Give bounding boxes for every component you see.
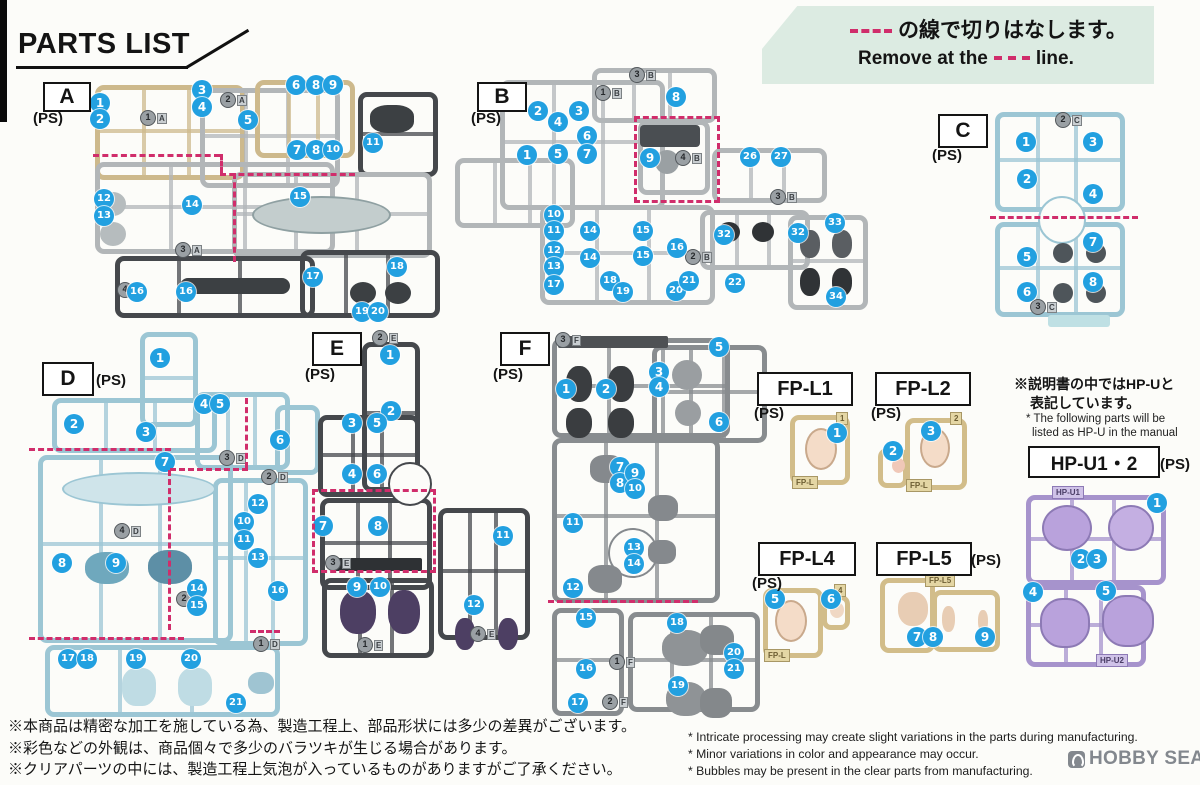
part-callout-E-12: 12 (464, 595, 484, 615)
part-callout-A-7: 7 (287, 140, 307, 160)
part-callout-F-2: 2 (596, 379, 616, 399)
runner-tag: 3A (175, 242, 202, 258)
runner-tag-letter: D (131, 526, 141, 537)
runner-tag-number: 1 (609, 654, 625, 670)
part-callout-F-1: 1 (556, 379, 576, 399)
cut-line (29, 637, 184, 640)
sprue-bar (1000, 158, 1120, 162)
runner-tag-letter: B (702, 252, 712, 263)
runner-tag-letter: D (270, 639, 280, 650)
cut-line (250, 630, 280, 633)
runner-chip: FP-L (906, 479, 932, 492)
part-callout-F-11: 11 (563, 513, 583, 533)
runner-label-box-B: B (477, 82, 527, 112)
part-callout-A-14: 14 (182, 195, 202, 215)
cut-line (220, 154, 223, 173)
runner-tag-number: 1 (357, 637, 373, 653)
runner-ps-label-D: (PS) (96, 372, 126, 389)
runner-tag: 1E (357, 637, 383, 653)
runner-tag-letter: A (157, 113, 167, 124)
part-callout-D-19: 19 (126, 649, 146, 669)
runner-tag-letter: A (237, 95, 247, 106)
part-callout-B-14: 14 (580, 248, 600, 268)
part-blob (752, 222, 774, 242)
part-blob (648, 495, 678, 521)
runner-tag-number: 3 (1030, 299, 1046, 315)
sprue-bar (104, 403, 108, 448)
runner-tag-letter: B (646, 70, 656, 81)
runner-tag-letter: F (619, 697, 628, 708)
cut-line (220, 173, 355, 176)
cut-line (245, 398, 248, 468)
part-callout-B-1: 1 (517, 145, 537, 165)
runner-tag: 2A (220, 92, 247, 108)
runner-tag: 2D (261, 469, 288, 485)
runner-tag: 1B (595, 85, 622, 101)
part-callout-C-3: 3 (1083, 132, 1103, 152)
runner-label-box-FP-L2: FP-L2 (875, 372, 971, 406)
part-callout-F-12: 12 (563, 578, 583, 598)
part-callout-F-19: 19 (668, 676, 688, 696)
runner-tag-number: 3 (629, 67, 645, 83)
part-callout-D-13: 13 (248, 548, 268, 568)
footer-jp-line2: ※彩色などの外観は、商品個々で多少のバラツキが生じる場合があります。 (8, 738, 636, 760)
part-callout-D-11: 11 (234, 530, 254, 550)
part-callout-E-9: 9 (347, 577, 367, 597)
part-callout-B-11: 11 (544, 221, 564, 241)
part-callout-HP-U-4: 4 (1023, 582, 1043, 602)
sprue-bar (528, 163, 532, 223)
sprue-bar (43, 542, 228, 546)
part-callout-B-13: 13 (544, 257, 564, 277)
hp-note-en-line1: * The following parts will be (1026, 413, 1165, 425)
part-blob (178, 668, 212, 706)
runner-tag: 1F (609, 654, 635, 670)
part-blob (180, 278, 290, 294)
part-callout-E-3: 3 (342, 413, 362, 433)
runner-tag-number: 3 (770, 189, 786, 205)
runner-tag: 2E (372, 330, 398, 346)
hp-note-jp-line2: 表記しています。 (1030, 393, 1140, 413)
runner-label-box-F: F (500, 332, 550, 366)
runner-tag-letter: F (626, 657, 635, 668)
part-blob (675, 400, 701, 426)
part-blob (1053, 243, 1073, 263)
runner-ps-label-FP-L2: (PS) (871, 405, 901, 422)
part-callout-E-5: 5 (367, 413, 387, 433)
cut-note-jp-text: の線で切りはなします。 (898, 19, 1127, 42)
runner-tag-number: 2 (372, 330, 388, 346)
part-callout-D-2: 2 (64, 414, 84, 434)
part-callout-F-21: 21 (724, 659, 744, 679)
runner-tag: 2B (685, 249, 712, 265)
sprue-bar (253, 397, 257, 465)
sprue-bar (657, 390, 762, 394)
part-callout-B-32: 32 (714, 225, 734, 245)
runner-ps-label-B: (PS) (471, 110, 501, 127)
part-callout-E-1: 1 (380, 345, 400, 365)
sprue-frame (652, 345, 767, 443)
part-callout-B-8: 8 (666, 87, 686, 107)
runner-label-box-FP-L4: FP-L4 (758, 542, 856, 576)
part-blob (566, 408, 592, 438)
part-callout-C-1: 1 (1016, 132, 1036, 152)
cut-line (168, 470, 171, 630)
part-blob (832, 230, 852, 258)
sprue-bar (443, 569, 525, 573)
runner-tag-letter: F (572, 335, 581, 346)
cut-line-box (634, 116, 720, 203)
runner-tag-number: 2 (685, 249, 701, 265)
part-callout-E-6: 6 (367, 464, 387, 484)
part-blob (1102, 595, 1154, 647)
part-callout-A-17: 17 (303, 267, 323, 287)
part-blob (1042, 505, 1092, 551)
hobby-search-logo-icon (1068, 751, 1085, 768)
runner-tag-number: 1 (140, 110, 156, 126)
part-callout-F-18: 18 (667, 613, 687, 633)
cut-line (93, 154, 220, 157)
runner-tag: 1A (140, 110, 167, 126)
part-callout-A-2: 2 (90, 109, 110, 129)
runner-chip: FP-L (764, 649, 790, 662)
parts-list-page: PARTS LIST の線で切りはなします。 Remove at theline… (0, 0, 1200, 785)
part-callout-A-15: 15 (290, 187, 310, 207)
part-callout-D-17: 17 (58, 649, 78, 669)
part-callout-D-18: 18 (77, 649, 97, 669)
runner-chip: HP-U1 (1052, 486, 1084, 499)
sprue-bar (271, 483, 275, 641)
part-blob (648, 540, 676, 564)
part-callout-D-15: 15 (187, 596, 207, 616)
hobby-search-watermark-text: HOBBY SEARCH (1089, 748, 1200, 770)
cut-note-en-pre: Remove at the (858, 48, 988, 69)
part-callout-B-5: 5 (548, 144, 568, 164)
runner-tag-number: 4 (114, 523, 130, 539)
part-callout-C-5: 5 (1017, 247, 1037, 267)
runner-label-box-A: A (43, 82, 91, 112)
part-blob (898, 592, 928, 626)
part-callout-B-3: 3 (569, 101, 589, 121)
part-callout-FP-L5-8: 8 (923, 627, 943, 647)
sprue-bar (493, 163, 497, 223)
part-callout-F-16: 16 (576, 659, 596, 679)
runner-tag-number: 1 (595, 85, 611, 101)
dashed-line-sample-icon (850, 29, 892, 33)
runner-ps-label-C: (PS) (932, 147, 962, 164)
runner-tag-number: 2 (602, 694, 618, 710)
cut-note-en: Remove at theline. (858, 48, 1074, 70)
part-blob (942, 606, 955, 632)
part-callout-A-20: 20 (368, 302, 388, 322)
runner-tag-letter: A (192, 245, 202, 256)
part-callout-F-15: 15 (576, 608, 596, 628)
part-blob (800, 268, 820, 296)
runner-tag-number: 3 (175, 242, 191, 258)
part-callout-B-19: 19 (613, 282, 633, 302)
part-callout-B-32: 32 (788, 223, 808, 243)
scan-edge-artifact (0, 0, 7, 122)
runner-label-box-C: C (938, 114, 988, 148)
runner-tag-letter: D (278, 472, 288, 483)
runner-tag-number: 2 (261, 469, 277, 485)
part-blob (1048, 315, 1110, 327)
part-callout-B-15: 15 (633, 221, 653, 241)
cut-note-jp: の線で切りはなします。 (850, 14, 1127, 44)
part-callout-A-4: 4 (192, 97, 212, 117)
part-callout-C-7: 7 (1083, 232, 1103, 252)
part-blob (700, 688, 732, 718)
part-callout-A-6: 6 (286, 75, 306, 95)
part-callout-D-12: 12 (248, 494, 268, 514)
part-callout-B-34: 34 (826, 287, 846, 307)
part-callout-A-11: 11 (363, 133, 383, 153)
cut-line (548, 600, 698, 603)
sprue-bar (1000, 266, 1120, 270)
part-callout-B-27: 27 (771, 147, 791, 167)
runner-tag: 2C (1055, 112, 1082, 128)
part-blob (62, 472, 216, 506)
runner-tag: 1D (253, 636, 280, 652)
cut-note-box: の線で切りはなします。 Remove at theline. (762, 6, 1154, 84)
footer-en-line1: * Intricate processing may create slight… (688, 729, 1138, 746)
runner-tag-number: 3 (219, 450, 235, 466)
sprue-bar (145, 376, 193, 380)
cut-line (170, 468, 248, 471)
cut-line (990, 216, 1138, 219)
part-callout-FP-L2-2: 2 (883, 441, 903, 461)
part-callout-B-6: 6 (577, 126, 597, 146)
part-callout-C-8: 8 (1083, 272, 1103, 292)
sprue-bar (793, 259, 863, 263)
part-callout-A-13: 13 (94, 206, 114, 226)
part-callout-F-6: 6 (709, 412, 729, 432)
runner-tag: 3B (629, 67, 656, 83)
part-blob (385, 282, 411, 304)
part-callout-A-5: 5 (238, 110, 258, 130)
part-callout-D-10: 10 (234, 512, 254, 532)
runner-label-box-FP-L1: FP-L1 (757, 372, 853, 406)
cut-line (233, 173, 236, 262)
part-callout-E-11: 11 (493, 526, 513, 546)
part-callout-A-16: 16 (127, 282, 147, 302)
part-blob (608, 408, 634, 438)
runner-ps-label-FP-L5: (PS) (971, 552, 1001, 569)
cut-note-en-post: line. (1036, 48, 1074, 69)
cut-line (29, 448, 171, 451)
part-blob (588, 565, 622, 593)
part-callout-B-4: 4 (548, 112, 568, 132)
runner-tag: 3D (219, 450, 246, 466)
sprue-bar (323, 453, 415, 457)
part-callout-C-2: 2 (1017, 169, 1037, 189)
part-callout-FP-L4-6: 6 (821, 589, 841, 609)
part-callout-C-6: 6 (1017, 282, 1037, 302)
part-callout-HP-U-5: 5 (1096, 581, 1116, 601)
sprue-bar (118, 650, 122, 712)
hp-note-jp-line1: ※説明書の中ではHP-Uと (1014, 374, 1174, 394)
part-callout-A-16: 16 (176, 282, 196, 302)
footer-jp-line1: ※本商品は精密な加工を施している為、製造工程上、部品形状には多少の差異がございま… (8, 716, 636, 738)
title-underline (16, 66, 188, 69)
runner-label-box-FP-L5: FP-L5 (876, 542, 972, 576)
runner-tag: 3F (555, 332, 581, 348)
runner-tag-number: 2 (220, 92, 236, 108)
part-callout-B-22: 22 (725, 273, 745, 293)
runner-tag: 4D (114, 523, 141, 539)
part-blob (1038, 196, 1086, 244)
runner-chip: FP-L (792, 476, 818, 489)
sprue-bar (244, 483, 248, 641)
runner-tag-letter: B (787, 192, 797, 203)
runner-chip: HP-U2 (1096, 654, 1128, 667)
part-callout-F-5: 5 (709, 337, 729, 357)
part-callout-F-10: 10 (625, 479, 645, 499)
part-callout-D-8: 8 (52, 553, 72, 573)
part-callout-A-9: 9 (323, 75, 343, 95)
part-blob (388, 590, 420, 634)
sprue-bar (344, 255, 348, 313)
part-callout-B-17: 17 (544, 275, 564, 295)
part-callout-B-26: 26 (740, 147, 760, 167)
part-callout-D-16: 16 (268, 581, 288, 601)
part-callout-F-4: 4 (649, 377, 669, 397)
part-blob (370, 105, 414, 133)
part-callout-F-14: 14 (624, 554, 644, 574)
runner-label-box-HP-U: HP-U1・2 (1028, 446, 1160, 478)
part-blob (248, 672, 274, 694)
part-callout-B-33: 33 (825, 213, 845, 233)
part-callout-B-2: 2 (528, 101, 548, 121)
runner-tag-number: 2 (1055, 112, 1071, 128)
page-title: PARTS LIST (18, 28, 190, 61)
part-callout-HP-U-3: 3 (1087, 549, 1107, 569)
part-callout-FP-L2-3: 3 (921, 421, 941, 441)
hp-note-en-line2: listed as HP-U in the manual (1032, 427, 1178, 439)
runner-ps-label-HP-U: (PS) (1160, 456, 1190, 473)
part-callout-B-16: 16 (667, 238, 687, 258)
runner-label-box-E: E (312, 332, 362, 366)
part-callout-D-3: 3 (136, 422, 156, 442)
part-callout-D-20: 20 (181, 649, 201, 669)
part-callout-A-18: 18 (387, 257, 407, 277)
footer-jp-line3: ※クリアパーツの中には、製造工程上気泡が入っているものがありますがご了承ください… (8, 759, 636, 781)
part-callout-A-10: 10 (323, 140, 343, 160)
runner-ps-label-A: (PS) (33, 110, 63, 127)
runner-tag: 2F (602, 694, 628, 710)
part-callout-D-1: 1 (150, 348, 170, 368)
part-blob (498, 618, 518, 650)
part-callout-HP-U-1: 1 (1147, 493, 1167, 513)
runner-tag-number: 3 (555, 332, 571, 348)
part-callout-D-21: 21 (226, 693, 246, 713)
runner-tag: 3B (770, 189, 797, 205)
part-callout-D-5: 5 (210, 394, 230, 414)
part-callout-D-6: 6 (270, 430, 290, 450)
hobby-search-watermark: HOBBY SEARCH (1068, 748, 1200, 770)
runner-tag-number: 4 (470, 626, 486, 642)
runner-tag-letter: C (1047, 302, 1057, 313)
runner-tag-letter: C (1072, 115, 1082, 126)
part-callout-E-10: 10 (370, 577, 390, 597)
part-blob (672, 360, 702, 390)
footer-notes-jp: ※本商品は精密な加工を施している為、製造工程上、部品形状には多少の差異がございま… (8, 716, 636, 781)
part-blob (1108, 505, 1154, 551)
runner-ps-label-FP-L4: (PS) (752, 575, 782, 592)
part-blob (1040, 598, 1090, 648)
runner-tag-number: 1 (253, 636, 269, 652)
runner-tag-letter: E (389, 333, 398, 344)
runner-ps-label-F: (PS) (493, 366, 523, 383)
part-blob (350, 282, 376, 304)
part-callout-D-9: 9 (106, 553, 126, 573)
dashed-line-sample-icon (994, 56, 1030, 60)
runner-tag: 3C (1030, 299, 1057, 315)
runner-tag-letter: E (374, 640, 383, 651)
part-callout-B-7: 7 (577, 144, 597, 164)
runner-chip: 2 (950, 412, 962, 425)
runner-ps-label-E: (PS) (305, 366, 335, 383)
runner-ps-label-FP-L1: (PS) (754, 405, 784, 422)
sprue-bar (468, 513, 472, 635)
part-callout-FP-L5-9: 9 (975, 627, 995, 647)
part-blob (122, 668, 156, 706)
part-callout-B-21: 21 (679, 271, 699, 291)
part-callout-FP-L4-5: 5 (765, 589, 785, 609)
part-callout-FP-L1-1: 1 (827, 423, 847, 443)
part-callout-B-14: 14 (580, 221, 600, 241)
runner-tag-letter: B (612, 88, 622, 99)
part-callout-E-4: 4 (342, 464, 362, 484)
part-callout-C-4: 4 (1083, 184, 1103, 204)
cut-line-box (312, 489, 436, 573)
runner-tag-letter: E (487, 629, 496, 640)
sprue-frame (438, 508, 530, 640)
part-callout-B-15: 15 (633, 246, 653, 266)
runner-label-box-D: D (42, 362, 94, 396)
part-blob (252, 196, 391, 234)
runner-tag: 4E (470, 626, 496, 642)
part-callout-F-17: 17 (568, 693, 588, 713)
